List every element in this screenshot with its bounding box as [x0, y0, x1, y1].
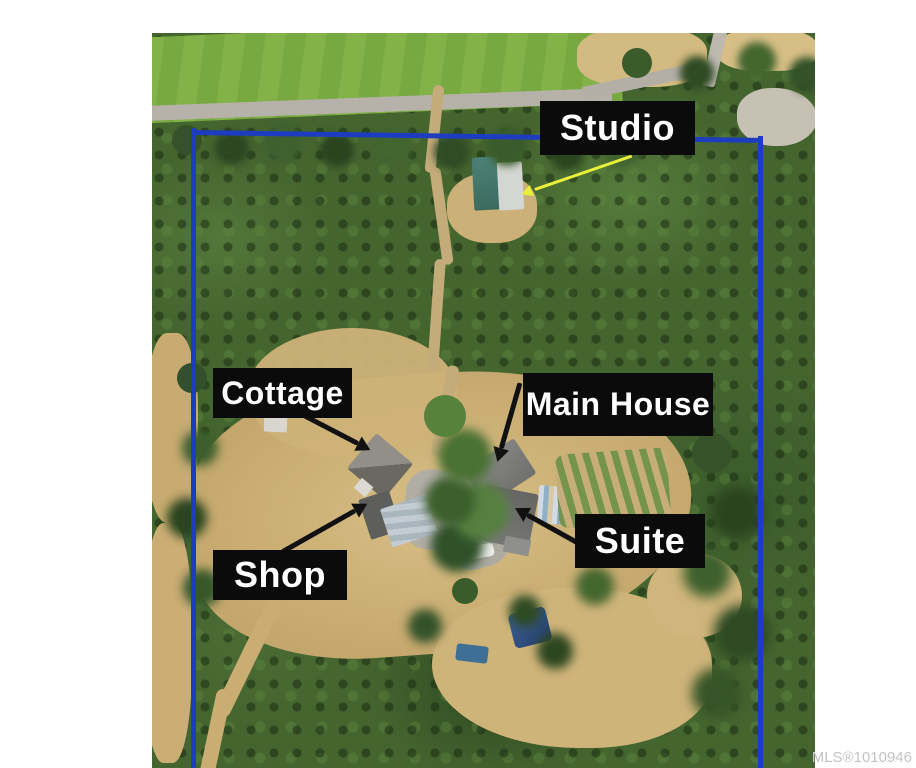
- clearing: [152, 523, 192, 763]
- tree-cluster: [622, 48, 652, 78]
- mls-watermark: MLS®1010946: [812, 749, 912, 766]
- dry-hill: [717, 33, 815, 71]
- shed: [264, 416, 288, 433]
- label-suite: Suite: [575, 514, 705, 568]
- label-shop: Shop: [213, 550, 347, 600]
- label-studio: Studio: [540, 101, 695, 155]
- boundary-line-right: [758, 136, 763, 768]
- aerial-photo: Studio Cottage Main House Shop Suite: [152, 33, 815, 768]
- tree-cluster: [424, 395, 466, 437]
- tree-cluster: [692, 433, 732, 473]
- label-cottage: Cottage: [213, 368, 352, 418]
- boundary-line-left: [191, 128, 196, 768]
- tree-cluster: [452, 578, 478, 604]
- arrowhead-icon: [519, 185, 533, 200]
- label-main-house: Main House: [523, 373, 713, 436]
